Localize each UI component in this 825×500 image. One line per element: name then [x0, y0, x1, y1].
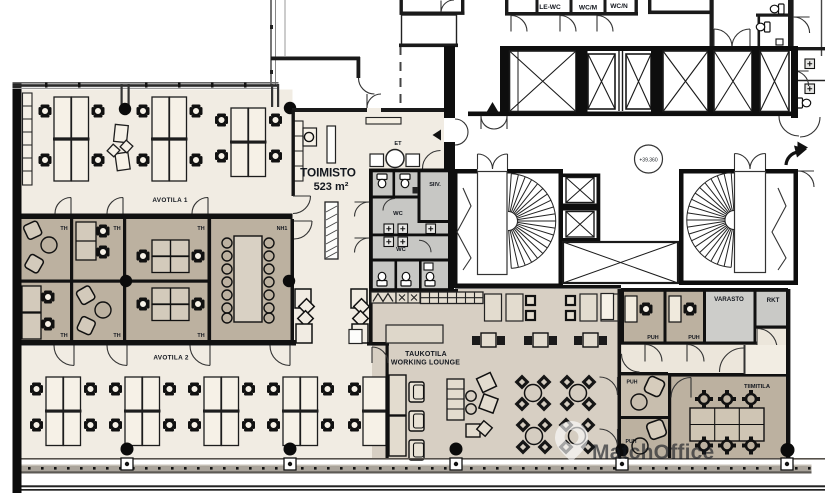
svg-text:TH: TH	[197, 333, 204, 339]
svg-text:+39.360: +39.360	[639, 158, 657, 164]
svg-text:LE-WC: LE-WC	[539, 4, 561, 11]
svg-text:PUH: PUH	[647, 335, 658, 341]
svg-text:WC: WC	[396, 247, 406, 253]
svg-text:WC/M: WC/M	[579, 5, 598, 12]
svg-text:PUH: PUH	[627, 380, 638, 386]
svg-text:PUH: PUH	[688, 335, 699, 341]
svg-text:VARASTO: VARASTO	[714, 296, 744, 303]
svg-text:AVOTILA 2: AVOTILA 2	[153, 355, 189, 362]
svg-text:TH: TH	[197, 226, 204, 232]
svg-text:RKT: RKT	[767, 297, 780, 304]
svg-text:TAUKOTILA: TAUKOTILA	[405, 351, 447, 358]
svg-text:TH: TH	[113, 333, 120, 339]
svg-text:ET: ET	[394, 141, 402, 147]
svg-text:TH: TH	[60, 333, 67, 339]
svg-text:TH: TH	[113, 226, 120, 232]
svg-text:SIIV.: SIIV.	[429, 182, 441, 188]
svg-text:WORKING LOUNGE: WORKING LOUNGE	[391, 360, 460, 367]
svg-text:TOIMISTO: TOIMISTO	[300, 166, 356, 180]
svg-text:AVOTILA 1: AVOTILA 1	[152, 197, 188, 204]
svg-text:WC/N: WC/N	[610, 3, 628, 10]
svg-text:TH: TH	[60, 226, 67, 232]
svg-text:MatchOffice: MatchOffice	[592, 441, 714, 464]
svg-text:WC: WC	[393, 211, 403, 217]
svg-text:TIIMITILA: TIIMITILA	[744, 384, 771, 390]
svg-text:NH1: NH1	[277, 226, 288, 232]
svg-text:523 m²: 523 m²	[314, 181, 349, 193]
